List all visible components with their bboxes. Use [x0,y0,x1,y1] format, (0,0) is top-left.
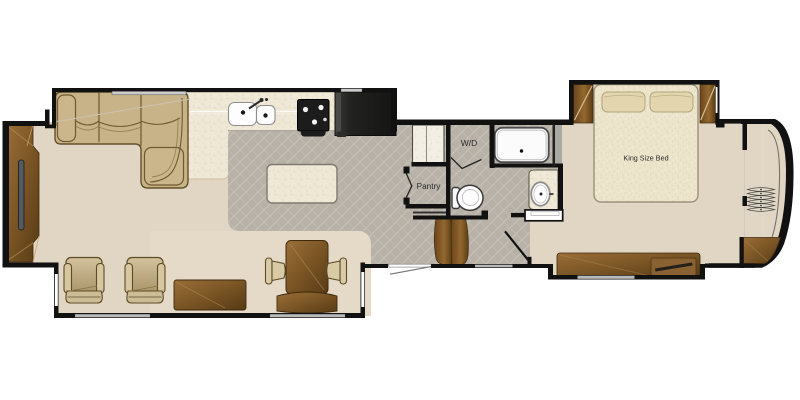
svg-text:W/D: W/D [461,138,478,148]
svg-text:King Size Bed: King Size Bed [623,154,668,163]
svg-text:Pantry: Pantry [417,182,442,191]
